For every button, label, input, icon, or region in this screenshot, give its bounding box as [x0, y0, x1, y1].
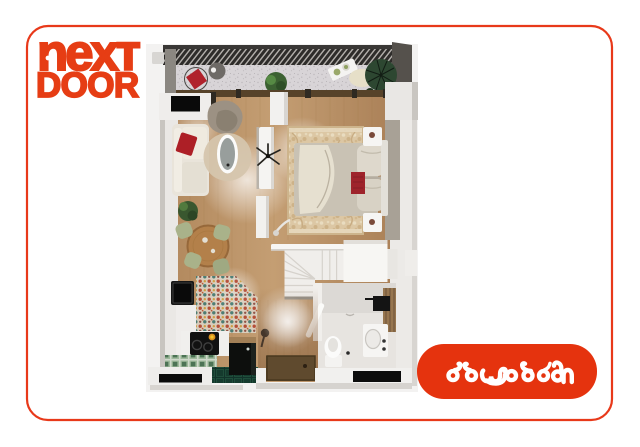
svg-text:DOOR: DOOR: [36, 66, 139, 105]
